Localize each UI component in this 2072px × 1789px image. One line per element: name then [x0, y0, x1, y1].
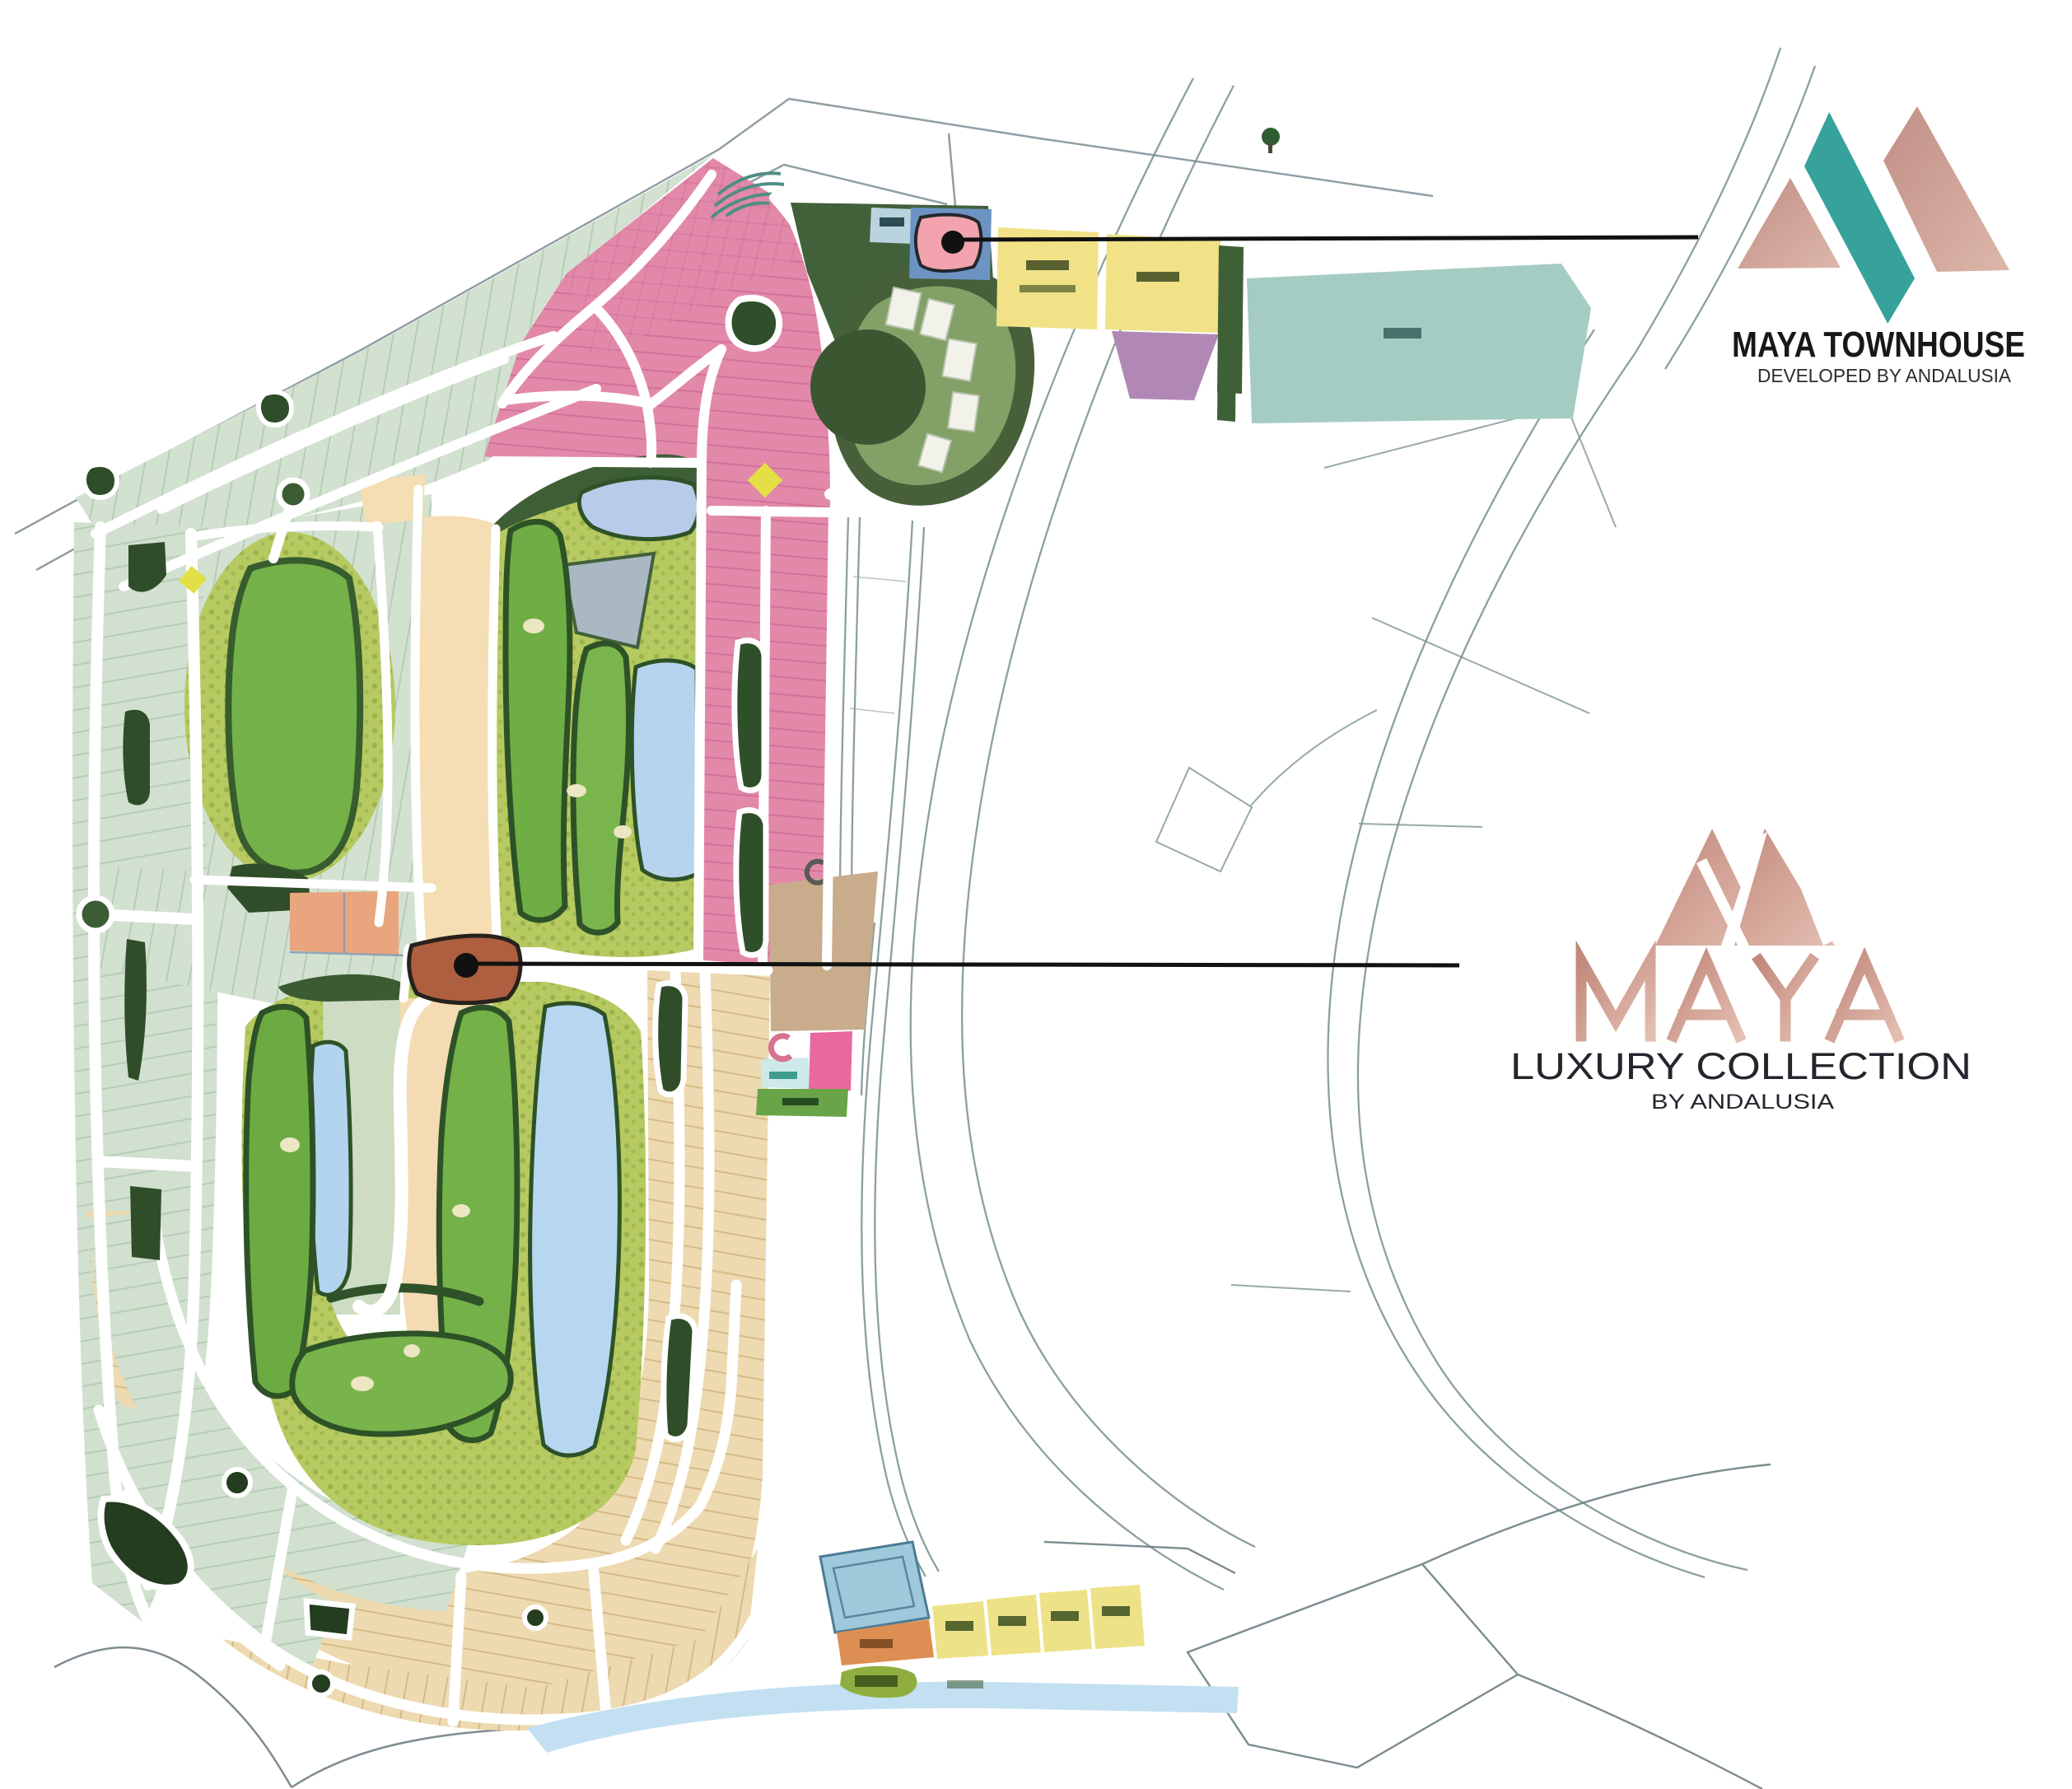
svg-text:BY ANDALUSIA: BY ANDALUSIA — [1651, 1091, 1834, 1114]
svg-text:LUXURY COLLECTION: LUXURY COLLECTION — [1510, 1045, 1972, 1087]
svg-text:MAYA TOWNHOUSE: MAYA TOWNHOUSE — [1732, 325, 2025, 365]
svg-text:DEVELOPED BY ANDALUSIA: DEVELOPED BY ANDALUSIA — [1757, 365, 2012, 386]
